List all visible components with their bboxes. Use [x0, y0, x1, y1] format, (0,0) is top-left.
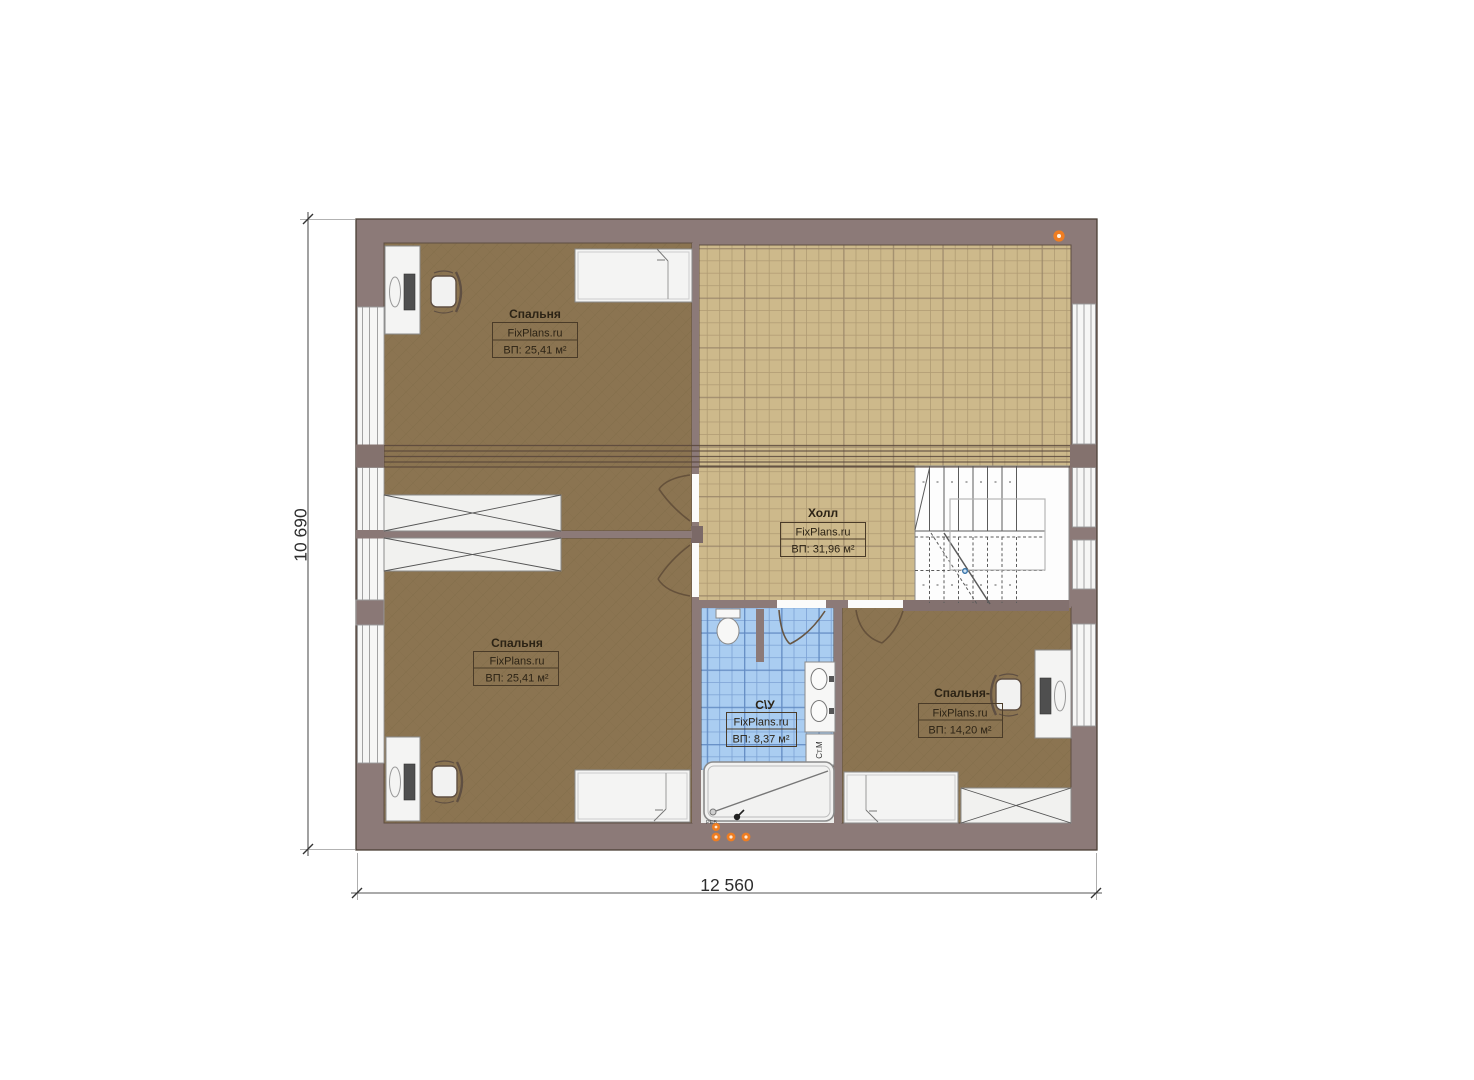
svg-text:FixPlans.ru: FixPlans.ru [507, 328, 562, 340]
svg-text:FixPlans.ru: FixPlans.ru [489, 656, 544, 668]
svg-text:ВП: 14,20 м²: ВП: 14,20 м² [928, 725, 992, 737]
svg-text:С\У: С\У [755, 698, 775, 712]
svg-text:ВП: 8,37 м²: ВП: 8,37 м² [732, 734, 789, 746]
svg-text:Холл: Холл [808, 506, 838, 520]
svg-text:FixPlans.ru: FixPlans.ru [733, 717, 788, 729]
svg-text:12 560: 12 560 [700, 875, 754, 895]
svg-text:Спальня: Спальня [491, 636, 543, 650]
svg-text:ВП: 31,96 м²: ВП: 31,96 м² [791, 544, 855, 556]
svg-text:FixPlans.ru: FixPlans.ru [932, 708, 987, 720]
svg-text:Ст.М: Ст.М [815, 741, 824, 759]
svg-text:ВП: 25,41 м²: ВП: 25,41 м² [503, 345, 567, 357]
svg-text:10 690: 10 690 [291, 508, 311, 562]
svg-text:ВП: 25,41 м²: ВП: 25,41 м² [485, 673, 549, 685]
svg-text:Спальня-: Спальня- [934, 686, 990, 700]
svg-text:FixPlans.ru: FixPlans.ru [795, 527, 850, 539]
svg-text:Спальня: Спальня [509, 307, 561, 321]
